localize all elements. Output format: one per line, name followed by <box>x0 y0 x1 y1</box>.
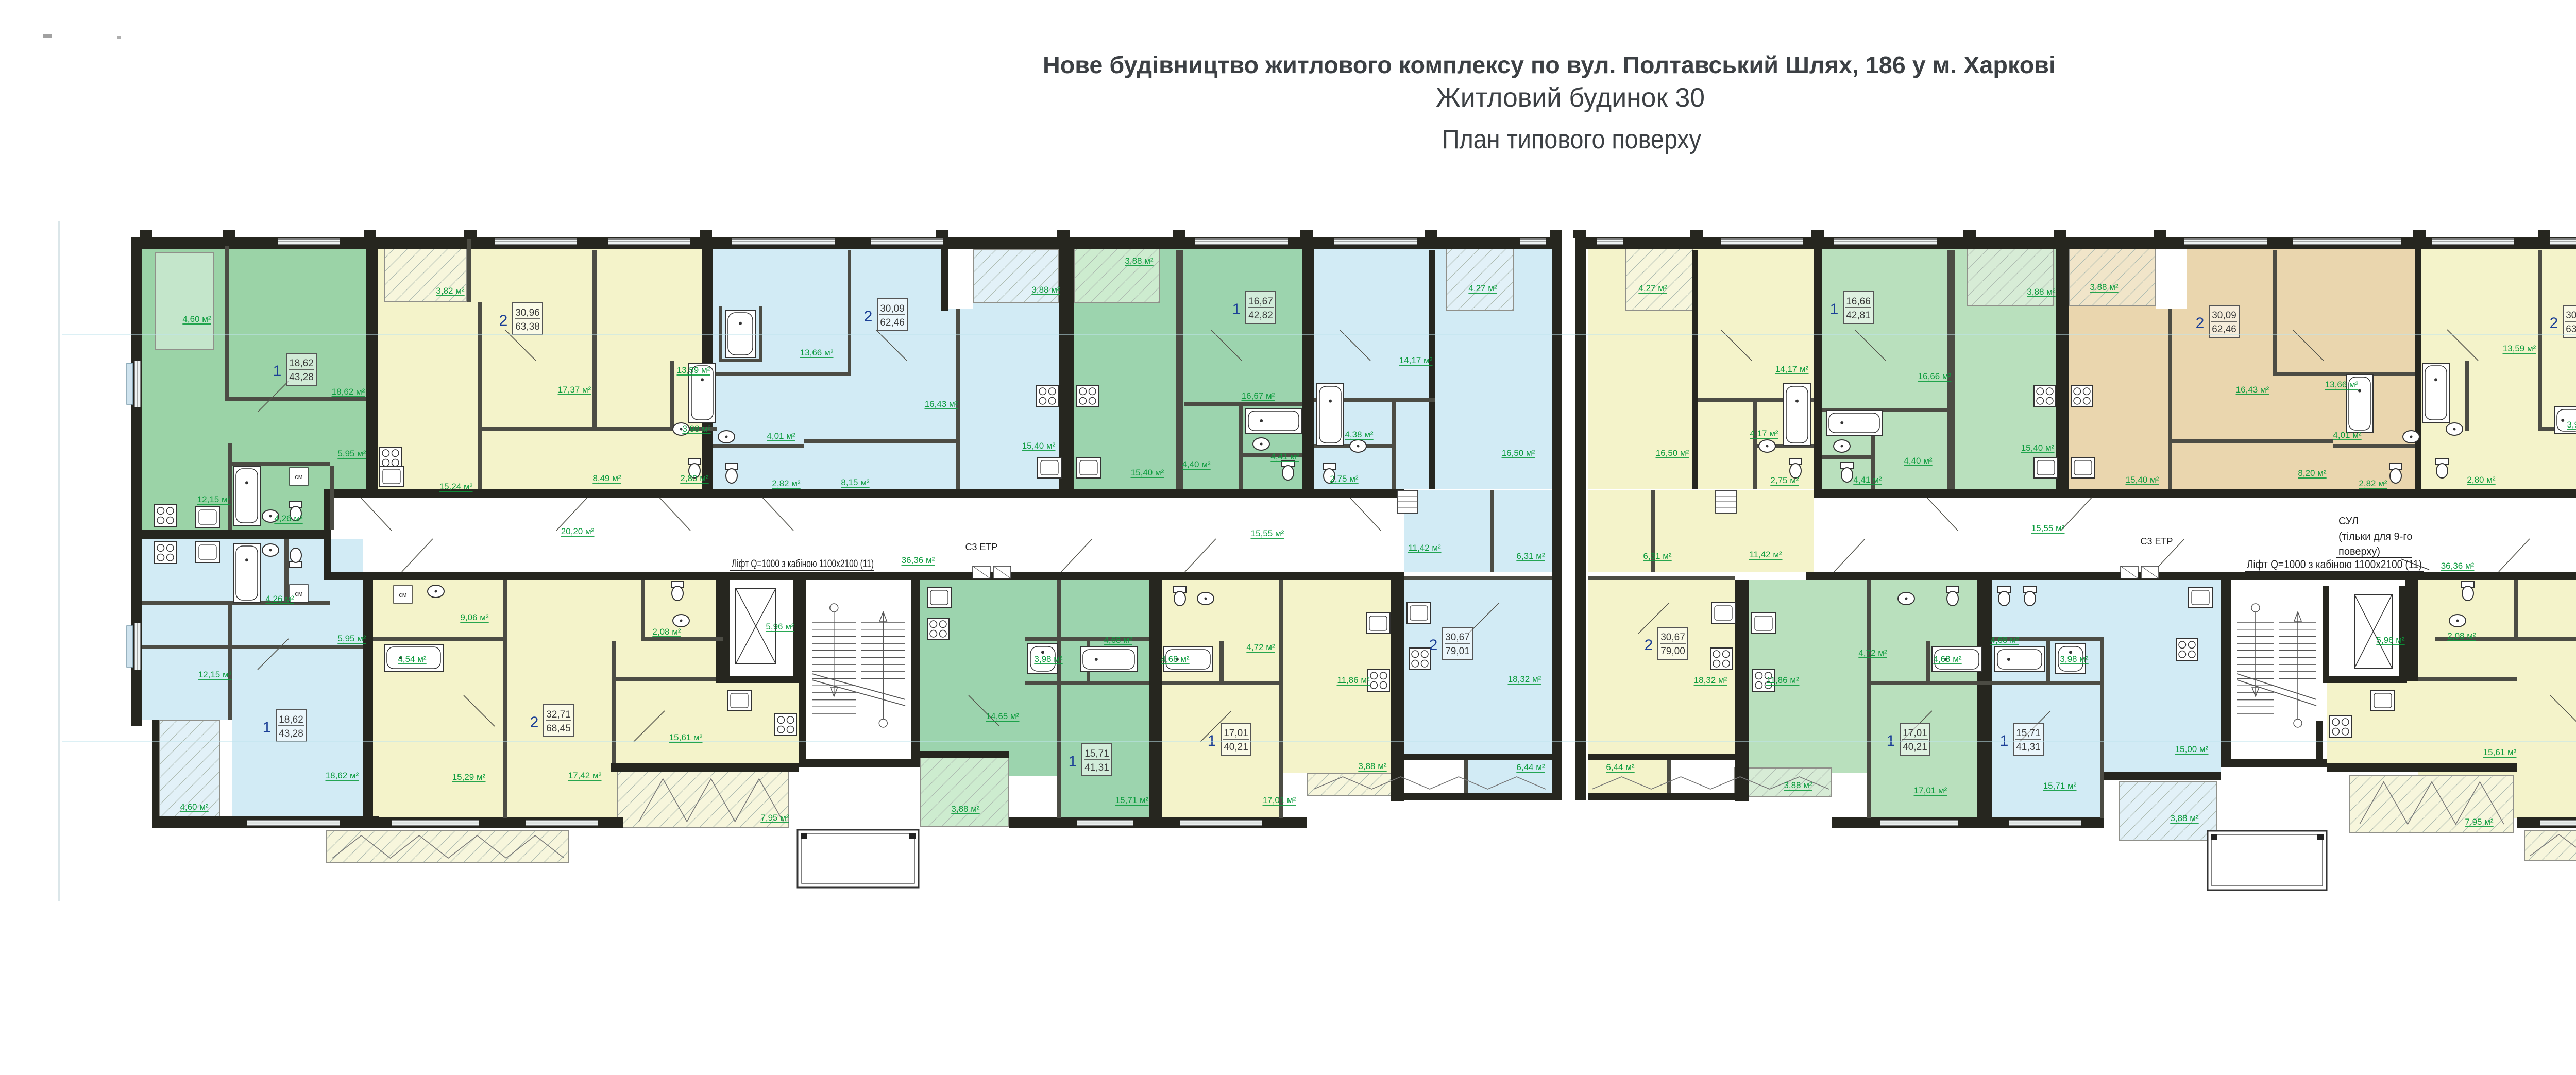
svg-text:16,50 м²: 16,50 м² <box>1656 448 1689 458</box>
svg-text:15,29 м²: 15,29 м² <box>452 772 486 782</box>
svg-text:5,95 м²: 5,95 м² <box>337 449 366 458</box>
svg-text:11,86 м²: 11,86 м² <box>1337 675 1370 685</box>
svg-text:15,61 м²: 15,61 м² <box>2483 747 2517 757</box>
svg-text:4,68 м²: 4,68 м² <box>1104 635 1132 645</box>
svg-text:6,31 м²: 6,31 м² <box>1643 551 1671 561</box>
svg-text:4,40 м²: 4,40 м² <box>1182 459 1210 469</box>
svg-text:5,96 м²: 5,96 м² <box>766 622 794 632</box>
svg-text:63,38: 63,38 <box>515 321 540 332</box>
svg-text:15,40 м²: 15,40 м² <box>2021 443 2055 453</box>
svg-text:13,59 м²: 13,59 м² <box>677 365 710 375</box>
svg-text:4,17 м²: 4,17 м² <box>1750 429 1778 438</box>
svg-text:3,82 м²: 3,82 м² <box>436 286 464 296</box>
svg-text:18,32 м²: 18,32 м² <box>1508 674 1541 684</box>
svg-text:5,95 м²: 5,95 м² <box>337 634 366 643</box>
svg-text:Ліфт Q=1000 з кабіною 1100х210: Ліфт Q=1000 з кабіною 1100х2100 (11) <box>732 558 874 570</box>
svg-text:18,62 м²: 18,62 м² <box>332 387 365 397</box>
svg-text:42,81: 42,81 <box>1846 310 1871 321</box>
svg-text:4,26 м²: 4,26 м² <box>265 594 294 604</box>
svg-text:6,44 м²: 6,44 м² <box>1606 762 1634 772</box>
svg-text:2,80 м²: 2,80 м² <box>2467 475 2495 485</box>
svg-text:11,42 м²: 11,42 м² <box>1408 543 1441 553</box>
svg-text:С3 ЕТР: С3 ЕТР <box>2140 536 2173 547</box>
svg-text:17,01: 17,01 <box>1903 728 1927 739</box>
svg-text:4,41 м²: 4,41 м² <box>1270 452 1299 462</box>
svg-text:4,68 м²: 4,68 м² <box>1933 654 1961 664</box>
svg-text:2: 2 <box>864 308 873 325</box>
svg-text:17,37 м²: 17,37 м² <box>558 385 591 395</box>
svg-text:1: 1 <box>273 363 282 380</box>
svg-text:2: 2 <box>530 714 539 731</box>
svg-text:см: см <box>295 590 303 598</box>
svg-text:3,88 м²: 3,88 м² <box>2027 287 2055 297</box>
svg-text:43,28: 43,28 <box>289 372 314 383</box>
svg-text:11,42 м²: 11,42 м² <box>1749 550 1782 559</box>
svg-text:15,40 м²: 15,40 м² <box>1022 441 1056 451</box>
svg-text:4,72 м²: 4,72 м² <box>1246 642 1275 652</box>
svg-text:1: 1 <box>1232 301 1241 318</box>
svg-text:15,71 м²: 15,71 м² <box>1115 795 1149 805</box>
svg-text:12,15 м²: 12,15 м² <box>197 494 231 504</box>
svg-text:3,98 м²: 3,98 м² <box>1034 654 1062 664</box>
svg-text:2,80 м²: 2,80 м² <box>680 473 708 483</box>
svg-text:16,67 м²: 16,67 м² <box>1242 391 1275 401</box>
svg-text:15,00 м²: 15,00 м² <box>2175 744 2209 754</box>
svg-text:9,06 м²: 9,06 м² <box>460 612 488 622</box>
svg-text:2,82 м²: 2,82 м² <box>2359 479 2387 488</box>
svg-text:3,88 м²: 3,88 м² <box>1358 761 1386 771</box>
svg-text:79,01: 79,01 <box>1445 646 1470 657</box>
svg-text:см: см <box>295 473 303 481</box>
svg-text:63,19: 63,19 <box>2566 324 2576 335</box>
svg-text:32,71: 32,71 <box>546 709 571 720</box>
svg-text:41,31: 41,31 <box>2016 742 2041 753</box>
svg-text:15,55 м²: 15,55 м² <box>1251 528 1284 538</box>
svg-text:4,41 м²: 4,41 м² <box>1853 475 1882 485</box>
svg-text:41,31: 41,31 <box>1084 762 1109 773</box>
svg-text:16,43 м²: 16,43 м² <box>2236 385 2269 395</box>
svg-text:6,31 м²: 6,31 м² <box>1516 551 1545 561</box>
svg-text:30,67: 30,67 <box>1660 632 1685 643</box>
svg-text:16,66: 16,66 <box>1846 296 1871 307</box>
svg-text:11,86 м²: 11,86 м² <box>1766 675 1799 685</box>
svg-text:43,28: 43,28 <box>279 728 303 739</box>
svg-text:3,88 м²: 3,88 м² <box>1784 780 1812 790</box>
svg-text:(тільки для 9-го: (тільки для 9-го <box>2338 531 2412 542</box>
svg-text:15,40 м²: 15,40 м² <box>2126 475 2159 485</box>
svg-text:20,20 м²: 20,20 м² <box>561 526 595 536</box>
svg-text:4,27 м²: 4,27 м² <box>1638 283 1667 293</box>
svg-text:13,66 м²: 13,66 м² <box>2325 380 2359 389</box>
svg-text:40,21: 40,21 <box>1224 742 1248 753</box>
svg-text:2: 2 <box>1645 637 1653 654</box>
svg-text:4,26 м²: 4,26 м² <box>274 514 302 523</box>
svg-text:14,65 м²: 14,65 м² <box>986 711 1020 721</box>
svg-text:2,75 м²: 2,75 м² <box>1330 474 1358 484</box>
svg-text:1: 1 <box>1830 301 1839 318</box>
svg-text:4,60 м²: 4,60 м² <box>180 802 208 812</box>
svg-text:4,68 м²: 4,68 м² <box>1990 635 2019 645</box>
svg-text:36,36 м²: 36,36 м² <box>2441 561 2475 571</box>
svg-text:2: 2 <box>499 312 508 329</box>
svg-text:13,66 м²: 13,66 м² <box>800 348 834 357</box>
svg-text:8,20 м²: 8,20 м² <box>2298 468 2326 478</box>
svg-text:4,01 м²: 4,01 м² <box>767 431 795 441</box>
svg-text:42,82: 42,82 <box>1248 310 1273 321</box>
svg-text:30,96: 30,96 <box>515 308 540 318</box>
svg-text:30,67: 30,67 <box>1445 632 1470 643</box>
svg-text:62,46: 62,46 <box>2212 324 2236 335</box>
svg-text:Нове будівництво житлового ком: Нове будівництво житлового комплексу по … <box>1043 52 2056 78</box>
svg-text:СУЛ: СУЛ <box>2338 516 2359 527</box>
svg-text:18,32 м²: 18,32 м² <box>1694 675 1727 685</box>
svg-text:12,15 м²: 12,15 м² <box>198 670 232 679</box>
svg-text:18,62: 18,62 <box>289 358 314 369</box>
svg-text:поверху): поверху) <box>2338 546 2380 557</box>
svg-text:8,49 м²: 8,49 м² <box>592 473 621 483</box>
svg-text:16,43 м²: 16,43 м² <box>925 399 958 409</box>
svg-text:4,68 м²: 4,68 м² <box>1161 654 1189 664</box>
svg-text:7,95 м²: 7,95 м² <box>2465 817 2493 827</box>
svg-text:18,62 м²: 18,62 м² <box>326 771 359 780</box>
svg-text:4,27 м²: 4,27 м² <box>1468 283 1497 293</box>
svg-text:3,88 м²: 3,88 м² <box>1031 285 1060 295</box>
svg-text:30,09: 30,09 <box>2212 310 2236 321</box>
svg-text:3,98 м²: 3,98 м² <box>682 424 710 434</box>
svg-text:7,95 м²: 7,95 м² <box>760 813 789 823</box>
svg-text:1: 1 <box>1069 753 1077 770</box>
svg-text:40,21: 40,21 <box>1903 742 1927 753</box>
svg-text:17,01: 17,01 <box>1224 728 1248 739</box>
svg-text:Житловий будинок 30: Житловий будинок 30 <box>1436 83 1705 113</box>
svg-text:3,88 м²: 3,88 м² <box>1125 256 1153 266</box>
svg-text:2,08 м²: 2,08 м² <box>2447 631 2476 641</box>
svg-text:62,46: 62,46 <box>880 317 905 328</box>
svg-text:6,44 м²: 6,44 м² <box>1516 762 1545 772</box>
svg-text:3,98 м²: 3,98 м² <box>2060 654 2088 664</box>
svg-text:4,72 м²: 4,72 м² <box>1858 648 1887 658</box>
svg-text:15,40 м²: 15,40 м² <box>1131 468 1164 477</box>
svg-text:16,67: 16,67 <box>1248 296 1273 307</box>
svg-text:17,01 м²: 17,01 м² <box>1914 786 1947 795</box>
svg-text:15,71: 15,71 <box>1084 748 1109 759</box>
svg-text:3,88 м²: 3,88 м² <box>2170 813 2198 823</box>
svg-text:8,15 м²: 8,15 м² <box>841 477 869 487</box>
svg-text:17,01 м²: 17,01 м² <box>1263 795 1296 805</box>
svg-text:15,71 м²: 15,71 м² <box>2043 781 2077 791</box>
svg-text:15,55 м²: 15,55 м² <box>2031 523 2065 533</box>
svg-text:3,98 м²: 3,98 м² <box>2567 420 2576 430</box>
svg-text:16,50 м²: 16,50 м² <box>1502 448 1535 458</box>
svg-text:79,00: 79,00 <box>1660 646 1685 657</box>
svg-text:4,54 м²: 4,54 м² <box>398 654 426 664</box>
svg-text:С3 ЕТР: С3 ЕТР <box>965 542 997 552</box>
svg-text:4,40 м²: 4,40 м² <box>1904 456 1932 466</box>
svg-text:68,45: 68,45 <box>546 723 571 734</box>
svg-text:4,38 м²: 4,38 м² <box>1345 430 1373 439</box>
svg-text:План типового поверху: План типового поверху <box>1442 125 1701 155</box>
svg-text:4,01 м²: 4,01 м² <box>2333 430 2361 440</box>
svg-text:3,88 м²: 3,88 м² <box>951 804 979 814</box>
svg-text:2,08 м²: 2,08 м² <box>652 627 681 637</box>
svg-text:30,70: 30,70 <box>2566 310 2576 321</box>
svg-text:2,75 м²: 2,75 м² <box>1770 475 1799 485</box>
svg-text:см: см <box>399 591 407 599</box>
svg-text:17,42 м²: 17,42 м² <box>568 771 602 780</box>
svg-text:14,17 м²: 14,17 м² <box>1399 355 1433 365</box>
svg-text:2: 2 <box>2196 315 2205 332</box>
svg-text:1: 1 <box>263 719 272 736</box>
svg-text:2: 2 <box>2550 315 2558 332</box>
svg-text:14,17 м²: 14,17 м² <box>1775 364 1809 374</box>
svg-text:36,36 м²: 36,36 м² <box>902 555 935 565</box>
svg-text:4,60 м²: 4,60 м² <box>182 314 211 324</box>
svg-text:13,59 м²: 13,59 м² <box>2503 344 2536 353</box>
svg-text:18,62: 18,62 <box>279 714 303 725</box>
svg-text:15,24 м²: 15,24 м² <box>439 482 473 491</box>
svg-text:30,09: 30,09 <box>880 303 905 314</box>
svg-text:15,71: 15,71 <box>2016 728 2041 739</box>
svg-text:2: 2 <box>1429 637 1438 654</box>
svg-text:5,96 м²: 5,96 м² <box>2376 635 2404 645</box>
svg-text:Ліфт Q=1000 з кабіною 1100х210: Ліфт Q=1000 з кабіною 1100х2100 (11) <box>2247 558 2422 571</box>
svg-text:16,66 м²: 16,66 м² <box>1918 371 1952 381</box>
svg-text:2,82 м²: 2,82 м² <box>772 479 800 488</box>
svg-text:3,88 м²: 3,88 м² <box>2090 282 2118 292</box>
